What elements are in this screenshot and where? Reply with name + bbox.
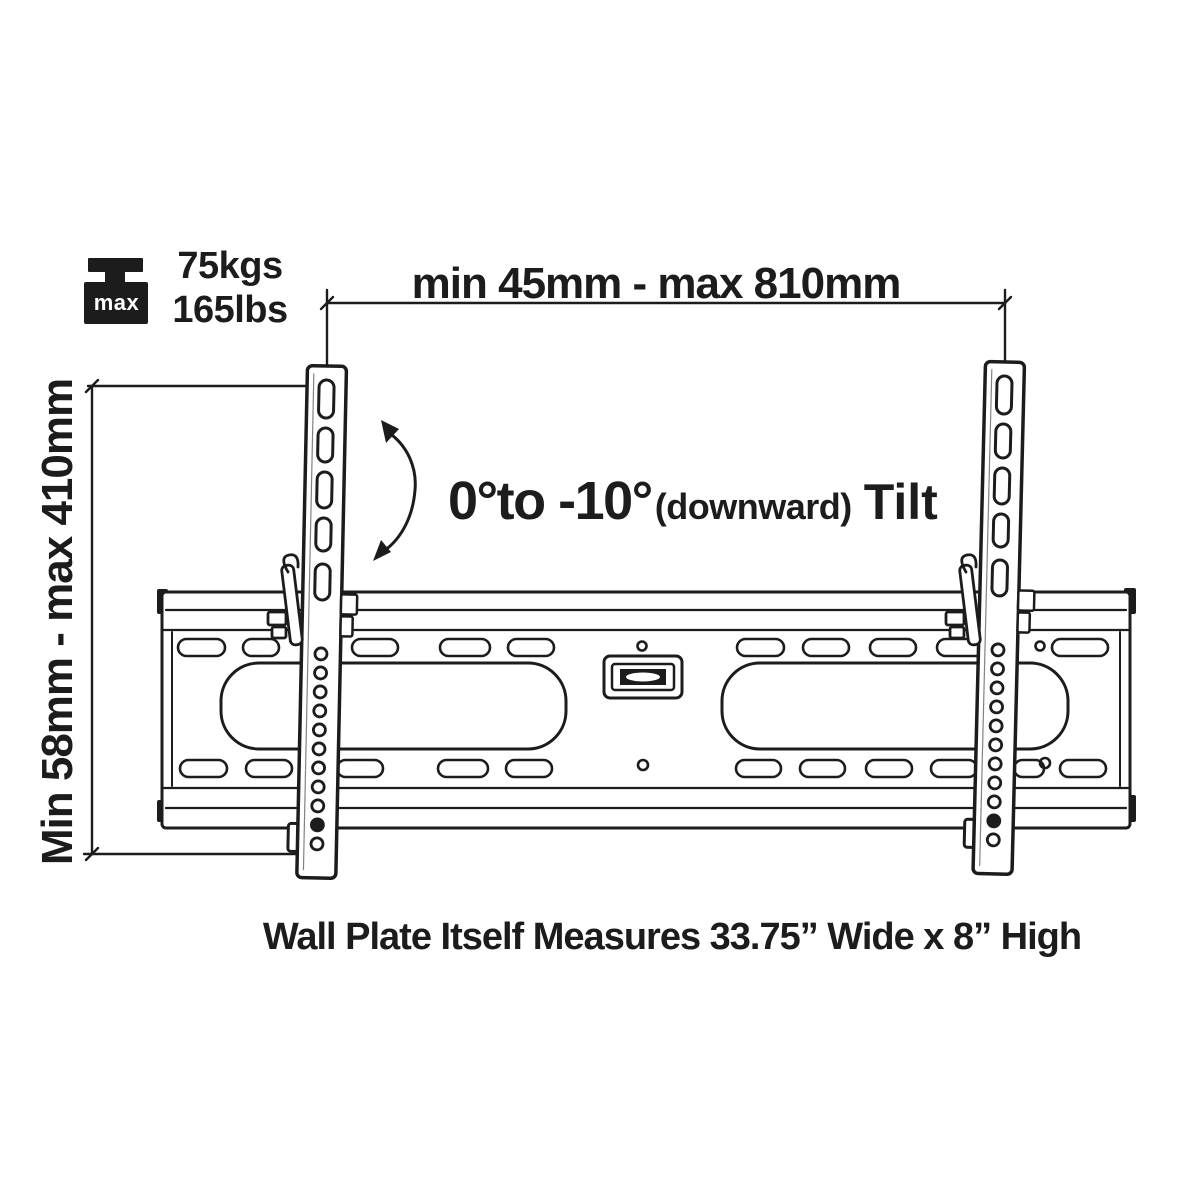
bubble-level: [604, 656, 682, 698]
left-cutout: [221, 663, 566, 749]
wall-mount-diagram: max 75kgs 165lbs min 45mm - max 810mm Mi…: [0, 0, 1200, 1200]
height-dimension-label: Min 58mm - max 410mm: [33, 379, 83, 865]
weight-kg-label: 75kgs: [165, 247, 295, 285]
tilt-annotation: 0°to -10° (downward) Tilt: [448, 470, 938, 532]
tilt-range-label: 0°to -10°: [448, 470, 652, 532]
width-dimension-label: min 45mm - max 810mm: [396, 262, 916, 306]
weight-icon-label: max: [85, 292, 148, 314]
tilt-arrow-icon: [373, 420, 415, 561]
wall-plate-caption: Wall Plate Itself Measures 33.75” Wide x…: [240, 918, 1104, 956]
tilt-word-label: Tilt: [864, 473, 938, 531]
line-drawing: [0, 0, 1200, 1200]
tilt-direction-note: (downward): [655, 486, 852, 528]
weight-lbs-label: 165lbs: [163, 291, 297, 329]
